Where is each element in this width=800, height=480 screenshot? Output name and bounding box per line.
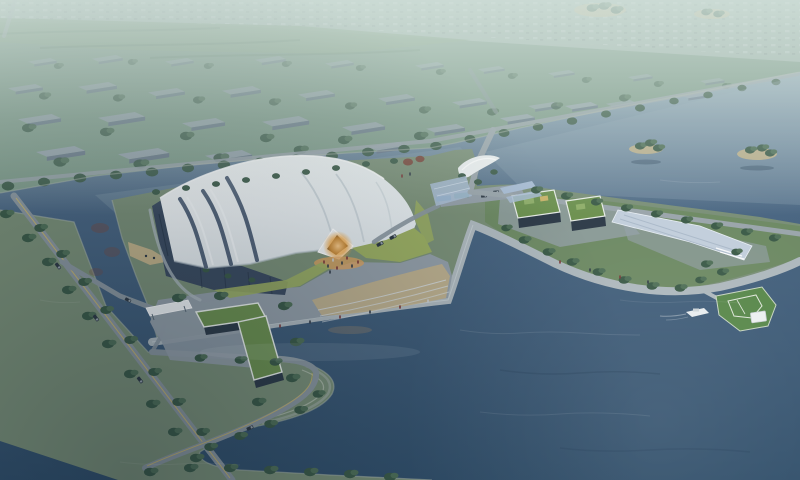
aerial-rendering: [0, 0, 800, 480]
rendering-canvas: [0, 0, 800, 480]
corner-vignette: [0, 0, 800, 480]
